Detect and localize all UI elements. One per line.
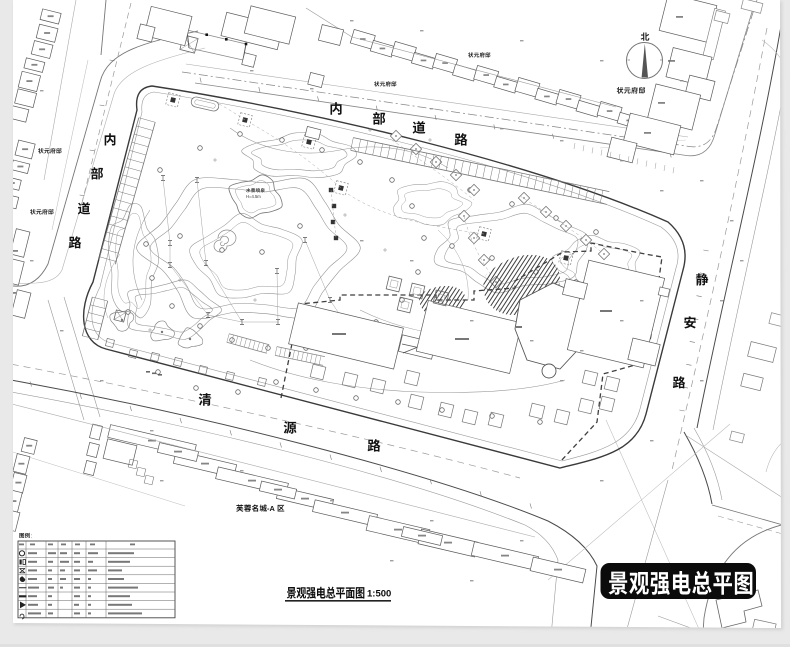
- svg-text:H=4.5m: H=4.5m: [246, 194, 261, 199]
- svg-text:1:500: 1:500: [367, 589, 391, 600]
- svg-text:-A: -A: [267, 504, 275, 513]
- svg-text::: :: [31, 534, 32, 540]
